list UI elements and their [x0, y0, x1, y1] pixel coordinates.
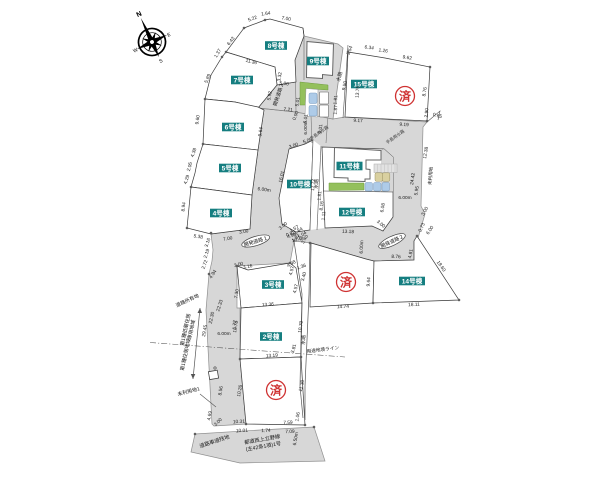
svg-text:10.01: 10.01	[236, 428, 249, 435]
svg-text:10.31: 10.31	[233, 419, 246, 426]
svg-text:13.18: 13.18	[342, 229, 355, 235]
svg-text:6.00m: 6.00m	[398, 195, 411, 201]
svg-text:済: 済	[340, 274, 353, 289]
svg-text:10号棟: 10号棟	[290, 179, 311, 188]
svg-text:2号棟: 2号棟	[263, 332, 280, 341]
svg-text:8.16: 8.16	[319, 201, 326, 211]
svg-text:8.94: 8.94	[181, 202, 188, 212]
svg-text:9.17: 9.17	[353, 118, 363, 124]
svg-text:7.21: 7.21	[283, 107, 293, 114]
svg-text:7.09: 7.09	[285, 429, 295, 435]
svg-text:水路: 水路	[300, 335, 308, 346]
svg-text:1.81: 1.81	[333, 95, 340, 105]
svg-text:1.11: 1.11	[321, 211, 328, 221]
svg-text:1.72: 1.72	[232, 320, 239, 330]
svg-text:2.90: 2.90	[424, 108, 431, 118]
svg-text:8.76: 8.76	[391, 254, 401, 260]
svg-text:7号棟: 7号棟	[234, 75, 251, 84]
svg-text:9.01: 9.01	[318, 124, 324, 134]
svg-text:5号棟: 5号棟	[222, 163, 239, 172]
svg-text:9.64: 9.64	[366, 277, 373, 287]
svg-text:18.11: 18.11	[408, 302, 420, 308]
svg-text:7.59: 7.59	[283, 420, 293, 426]
svg-text:1.87: 1.87	[333, 105, 340, 115]
svg-text:13.36: 13.36	[262, 302, 275, 309]
svg-text:13.76: 13.76	[354, 85, 361, 98]
svg-text:12号棟: 12号棟	[342, 207, 363, 216]
svg-text:17.72: 17.72	[310, 178, 317, 191]
svg-text:11号棟: 11号棟	[339, 161, 360, 170]
svg-text:14号棟: 14号棟	[402, 276, 423, 285]
svg-text:6.00m: 6.00m	[217, 331, 230, 337]
svg-text:9.19: 9.19	[399, 122, 409, 128]
svg-text:4号棟: 4号棟	[213, 208, 230, 217]
svg-text:8号棟: 8号棟	[268, 41, 285, 50]
svg-text:1.81: 1.81	[317, 191, 324, 201]
svg-text:13.19: 13.19	[266, 353, 279, 360]
svg-text:3号棟: 3号棟	[265, 280, 282, 289]
svg-text:9号棟: 9号棟	[310, 56, 327, 65]
svg-text:14.74: 14.74	[337, 304, 350, 310]
svg-text:済: 済	[270, 382, 283, 397]
svg-text:6号棟: 6号棟	[225, 122, 242, 131]
svg-text:済: 済	[399, 88, 412, 103]
svg-text:1.74: 1.74	[261, 428, 271, 434]
svg-text:5.00: 5.00	[279, 81, 289, 88]
svg-text:6.00m: 6.00m	[303, 121, 309, 134]
svg-text:6.00m: 6.00m	[359, 240, 365, 254]
